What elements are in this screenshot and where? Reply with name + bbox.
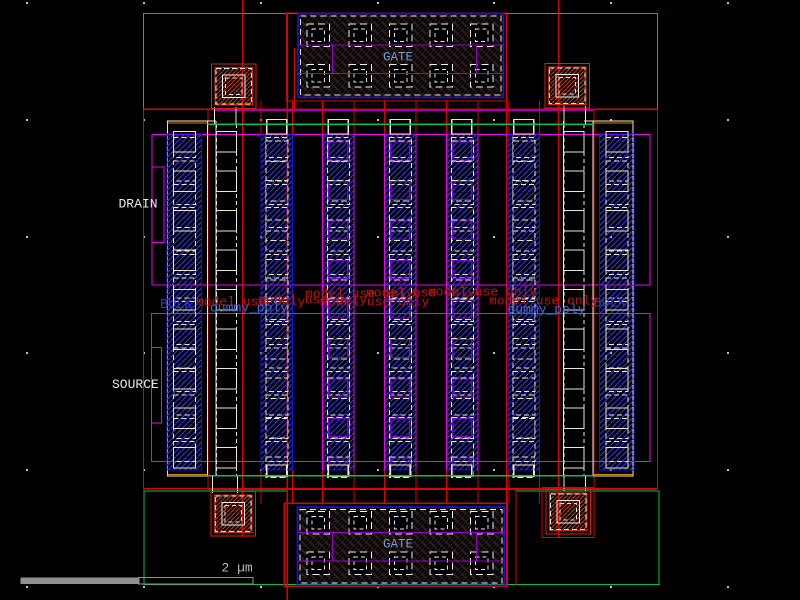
svg-text:dummy_poly: dummy_poly <box>508 302 586 317</box>
svg-text:GATE: GATE <box>383 51 413 65</box>
svg-text:GATE: GATE <box>383 538 413 552</box>
svg-text:2 µm: 2 µm <box>222 561 253 576</box>
svg-text:dummy_poly: dummy_poly <box>210 301 288 316</box>
svg-text:BULK: BULK <box>594 297 627 312</box>
svg-text:BULK: BULK <box>160 298 193 313</box>
svg-text:SOURCE: SOURCE <box>112 377 159 392</box>
svg-text:DRAIN: DRAIN <box>119 197 158 212</box>
